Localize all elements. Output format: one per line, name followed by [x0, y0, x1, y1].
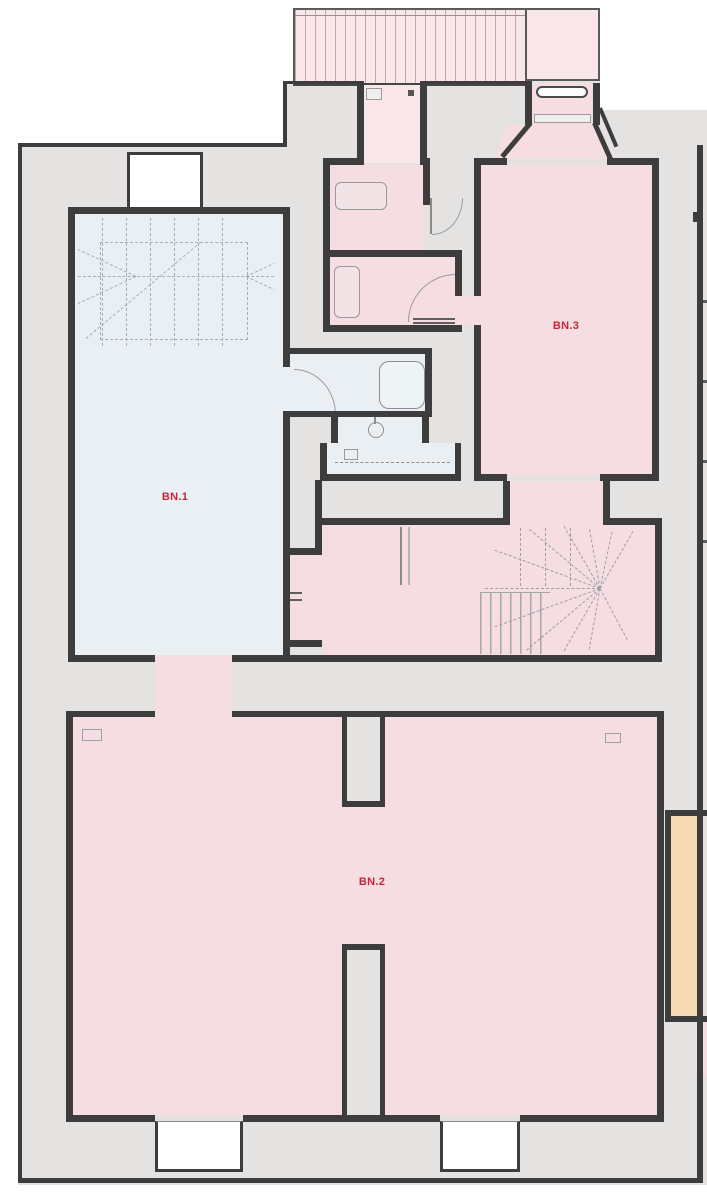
fixture-glyph [344, 449, 358, 460]
wall-segment [232, 711, 663, 717]
wall-segment [600, 474, 659, 481]
toilet-icon [374, 417, 376, 424]
wall-segment [603, 481, 610, 525]
room-bn1-label: BN.1 [145, 490, 205, 504]
wall-segment [283, 415, 290, 655]
dashed-stair-icon [78, 216, 274, 348]
neighbor-room-orange [670, 816, 700, 1016]
fixture-glyph [82, 729, 102, 741]
wall-segment [315, 518, 503, 525]
wall-segment [423, 158, 430, 205]
wall-segment [655, 518, 662, 655]
stair-tread-line [570, 528, 571, 586]
wall-segment [290, 548, 322, 555]
stair-tread-line [520, 528, 521, 586]
wall-segment [503, 481, 510, 525]
wall-segment [357, 81, 364, 163]
wall-segment [68, 655, 155, 662]
wall-segment [331, 417, 338, 443]
wall-segment [290, 655, 662, 662]
wall-segment [665, 1016, 707, 1022]
wall-tick [703, 460, 707, 463]
fixture-glyph [605, 733, 621, 743]
wall-segment [285, 81, 360, 84]
wall-segment [474, 474, 507, 481]
wall-segment [474, 158, 481, 296]
floor-plan: BN.1 BN.3 BN.2 [0, 0, 707, 1200]
wall-segment [283, 207, 290, 367]
wall-segment [68, 207, 290, 214]
stair-tread-line [545, 528, 546, 586]
wall-segment [474, 325, 481, 481]
wall-segment [610, 518, 655, 525]
threshold-mark [413, 318, 455, 320]
wall-segment [315, 480, 322, 555]
wall-stub-bottom [347, 950, 380, 1115]
wall-segment [320, 474, 461, 481]
stair-winder-line [485, 588, 600, 589]
shower-icon [334, 266, 360, 318]
hatched-terrace [293, 8, 527, 86]
room-bn3-label: BN.3 [536, 319, 596, 333]
wall-stub-top [347, 717, 380, 801]
wall-segment [66, 1115, 155, 1122]
passage-neck [155, 655, 232, 717]
window-niche [155, 1121, 243, 1172]
wall-tick [703, 540, 707, 543]
wall-segment [420, 81, 427, 163]
room-bn2-label: BN.2 [342, 875, 402, 889]
wall-segment [323, 158, 330, 250]
chimney-shaft-top [525, 8, 600, 81]
wall-segment [323, 325, 462, 332]
wall-segment [342, 801, 385, 807]
wall-segment [66, 711, 73, 1122]
wall-segment [68, 207, 75, 662]
wall-segment [232, 655, 290, 662]
threshold-mark [288, 599, 302, 601]
bathtub-icon [379, 361, 425, 409]
sink-dashline [335, 462, 450, 463]
fixture-glyph [366, 88, 382, 100]
window-niche [440, 1121, 520, 1172]
corridor-arm [290, 555, 322, 640]
wall-segment [342, 944, 347, 1122]
threshold-mark [413, 322, 455, 324]
door-jamb [408, 527, 410, 585]
passage-bn3-hall [510, 481, 603, 525]
wall-segment [427, 81, 532, 84]
toilet-icon [368, 422, 384, 438]
wall-segment [525, 83, 532, 125]
wall-tick [703, 300, 707, 303]
stair-winder-line [246, 239, 274, 277]
wall-segment [697, 145, 703, 1178]
door-opening-bn1 [283, 367, 290, 415]
wall-segment [607, 158, 659, 165]
window-niche [127, 152, 203, 210]
wall-segment [342, 717, 347, 807]
wall-segment [665, 810, 707, 816]
wall-segment [323, 250, 462, 257]
door-jamb [400, 527, 402, 585]
wall-segment [342, 944, 385, 950]
stair-winder-line [246, 276, 274, 314]
wall-segment [18, 143, 22, 1181]
wall-segment [283, 411, 432, 417]
terrace-edge-line [295, 15, 525, 16]
wall-tick [703, 380, 707, 383]
wall-segment [323, 250, 330, 332]
wall-segment [422, 417, 429, 443]
wall-segment [380, 944, 385, 1122]
wall-segment [474, 158, 507, 165]
wall-segment [652, 158, 659, 481]
wall-segment [290, 348, 432, 354]
wall-segment [18, 1178, 703, 1183]
entry-step [534, 114, 591, 123]
wall-segment [283, 81, 287, 147]
passage-r1-bn3 [462, 296, 481, 325]
entry-step [536, 86, 588, 98]
wall-segment [455, 250, 462, 296]
wall-segment [665, 810, 671, 1022]
wall-segment [380, 717, 385, 807]
wall-segment [18, 143, 285, 147]
wall-segment [425, 348, 432, 417]
stair-outline [100, 242, 248, 340]
wall-segment [66, 711, 155, 717]
fixture-glyph [408, 90, 414, 96]
threshold-mark [288, 592, 302, 594]
wall-segment [290, 640, 322, 647]
wall-segment [593, 83, 600, 125]
wall-segment [520, 1115, 664, 1122]
washbasin-icon [335, 182, 387, 210]
wall-segment [657, 711, 664, 1122]
straight-stair-icon [480, 592, 550, 654]
